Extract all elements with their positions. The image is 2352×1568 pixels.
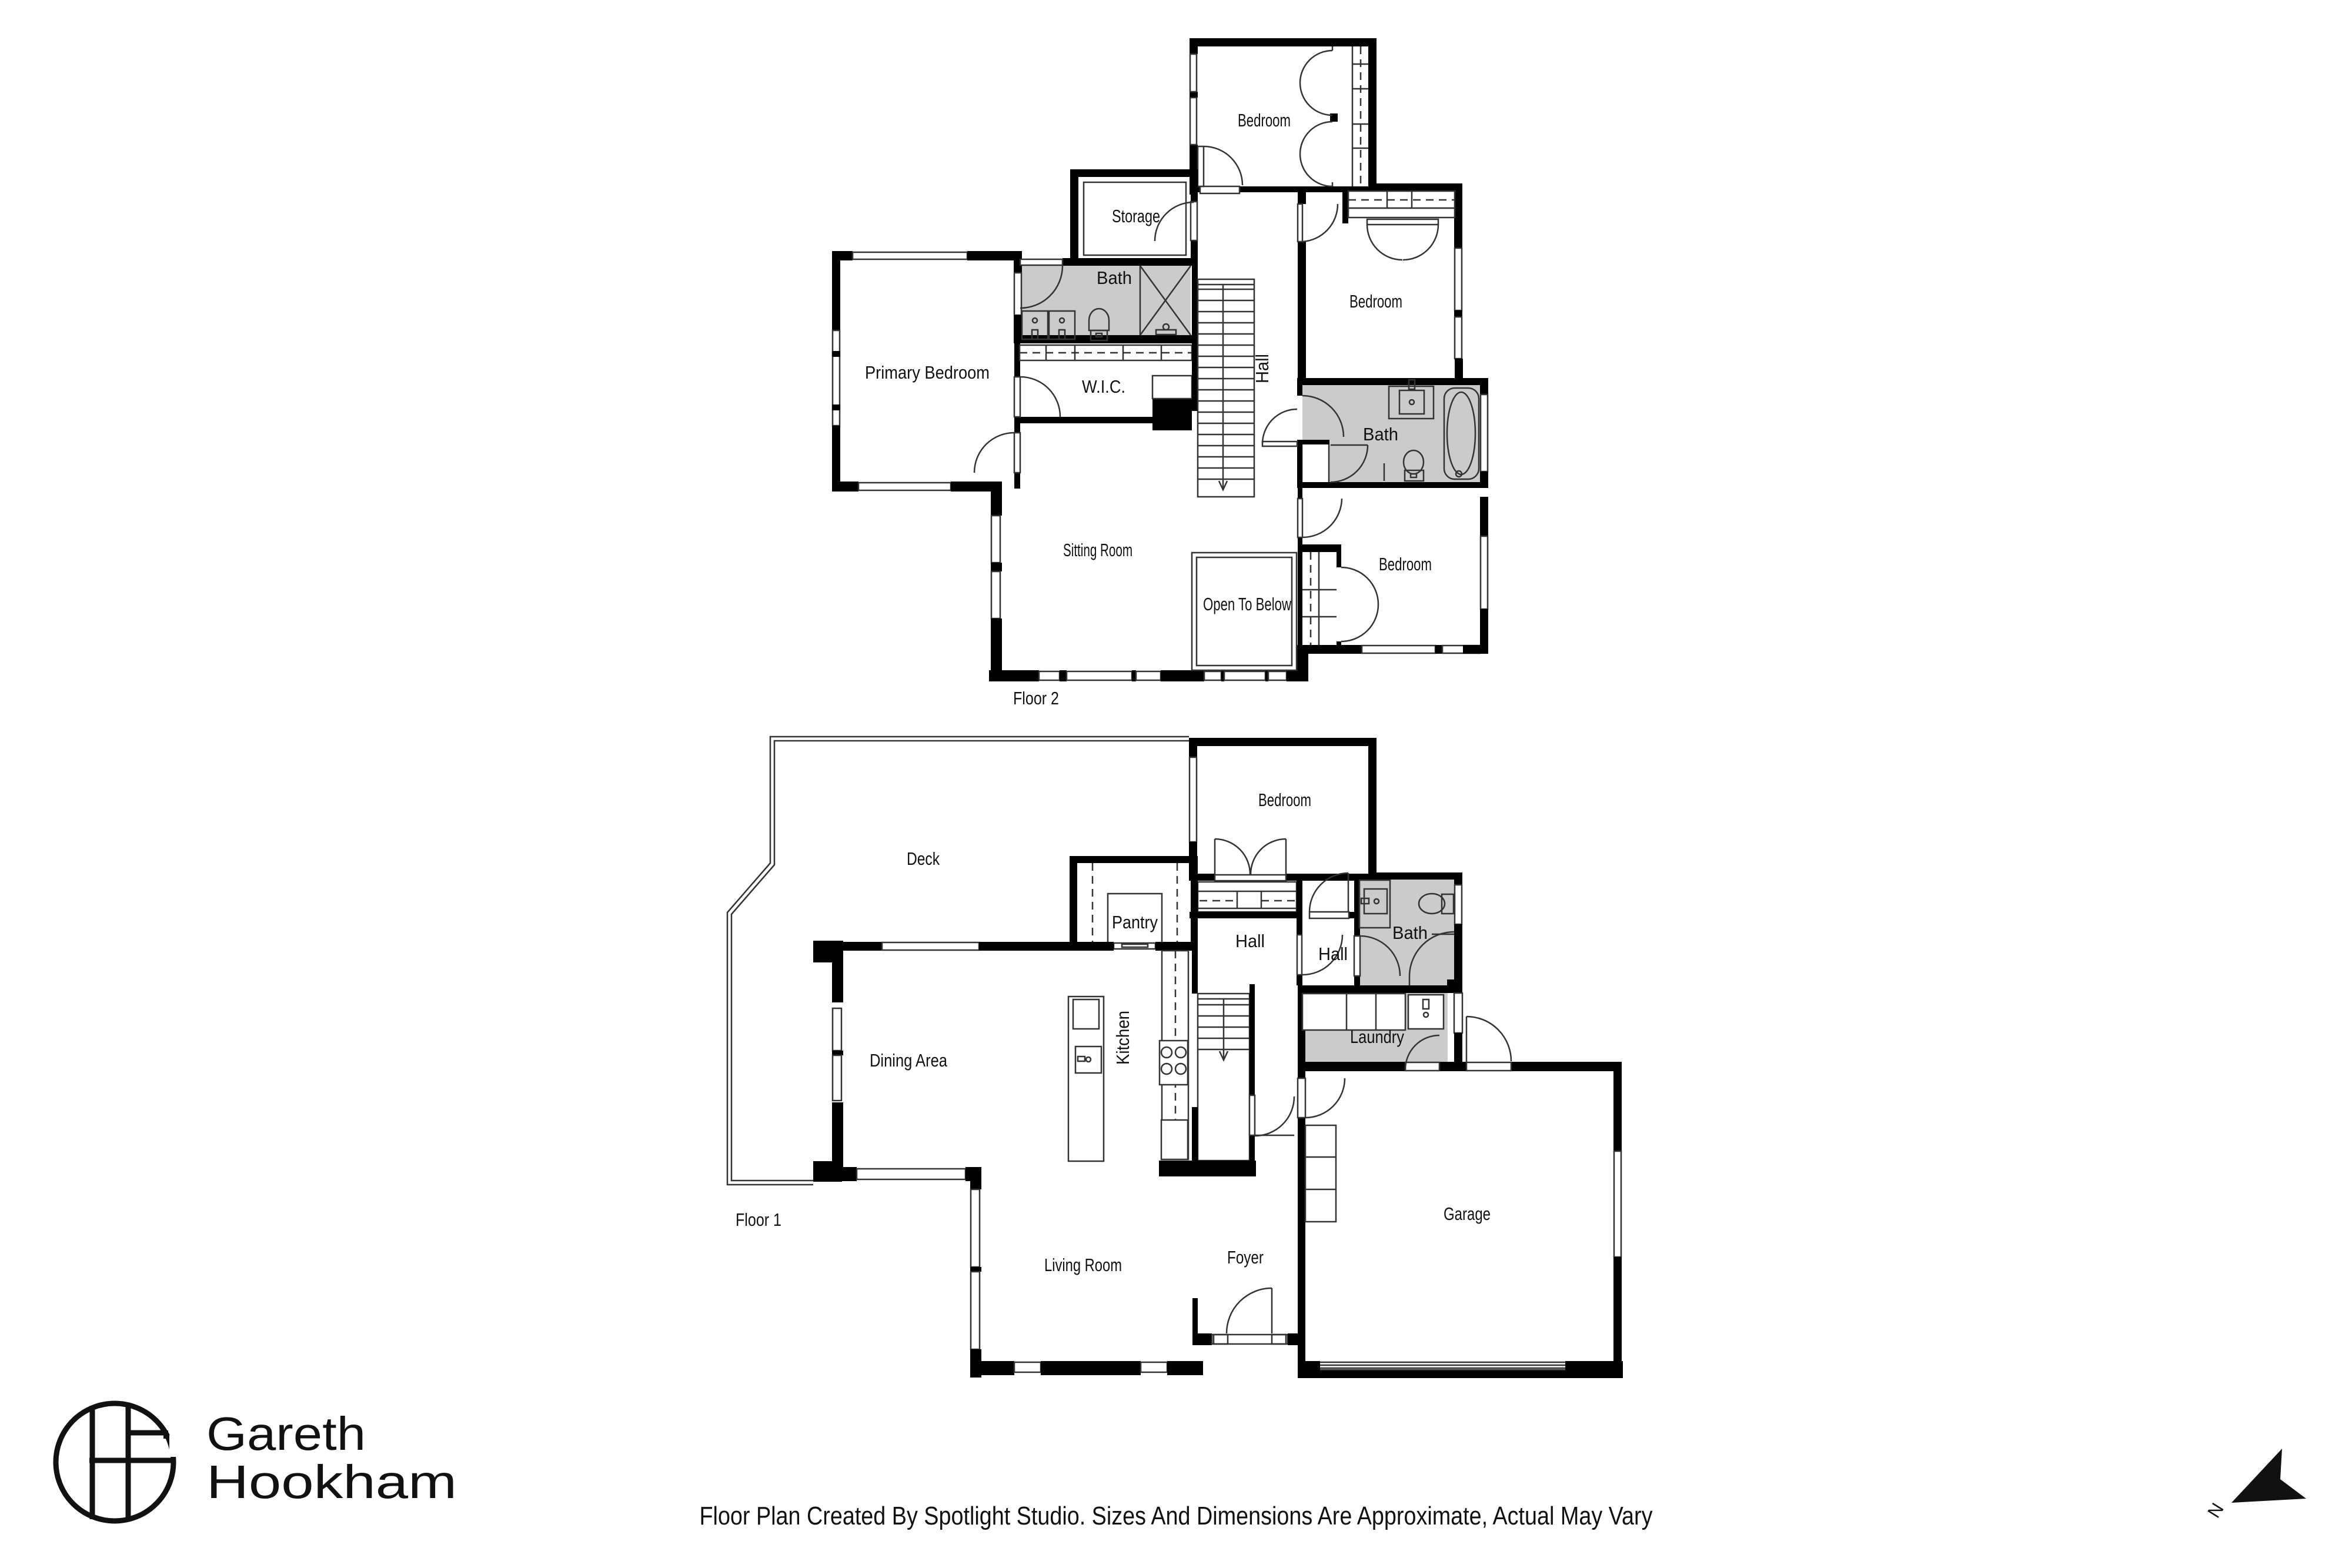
svg-text:Floor 1: Floor 1: [736, 1209, 781, 1230]
svg-text:Kitchen: Kitchen: [1112, 1011, 1133, 1065]
svg-text:Foyer: Foyer: [1227, 1247, 1264, 1268]
svg-text:Hall: Hall: [1235, 931, 1265, 951]
svg-text:Garage: Garage: [1444, 1203, 1491, 1224]
svg-text:Bedroom: Bedroom: [1258, 790, 1311, 810]
svg-text:Pantry: Pantry: [1112, 912, 1158, 932]
svg-text:Open To Below: Open To Below: [1203, 594, 1291, 614]
svg-text:Sitting Room: Sitting Room: [1063, 540, 1132, 560]
svg-text:W.I.C.: W.I.C.: [1082, 376, 1125, 397]
svg-text:Laundry: Laundry: [1350, 1027, 1404, 1047]
svg-text:Bedroom: Bedroom: [1349, 291, 1402, 312]
svg-text:Bedroom: Bedroom: [1379, 554, 1432, 574]
svg-text:Floor Plan Created By Spotligh: Floor Plan Created By Spotlight Studio. …: [700, 1502, 1653, 1530]
svg-text:Bath: Bath: [1097, 268, 1132, 288]
svg-text:Storage: Storage: [1112, 206, 1160, 226]
svg-text:Deck: Deck: [907, 848, 940, 869]
svg-text:Floor 2: Floor 2: [1013, 688, 1059, 708]
svg-text:Hall: Hall: [1252, 354, 1272, 383]
svg-text:Gareth: Gareth: [206, 1407, 366, 1460]
svg-text:Dining Area: Dining Area: [870, 1050, 948, 1071]
svg-text:Bedroom: Bedroom: [1238, 110, 1291, 131]
svg-text:Primary Bedroom: Primary Bedroom: [865, 362, 990, 383]
svg-text:Bath: Bath: [1363, 424, 1398, 444]
svg-text:Bath: Bath: [1392, 922, 1428, 943]
svg-text:Hall: Hall: [1318, 944, 1348, 964]
svg-text:Living Room: Living Room: [1044, 1255, 1122, 1275]
svg-text:Hookham: Hookham: [206, 1456, 457, 1508]
